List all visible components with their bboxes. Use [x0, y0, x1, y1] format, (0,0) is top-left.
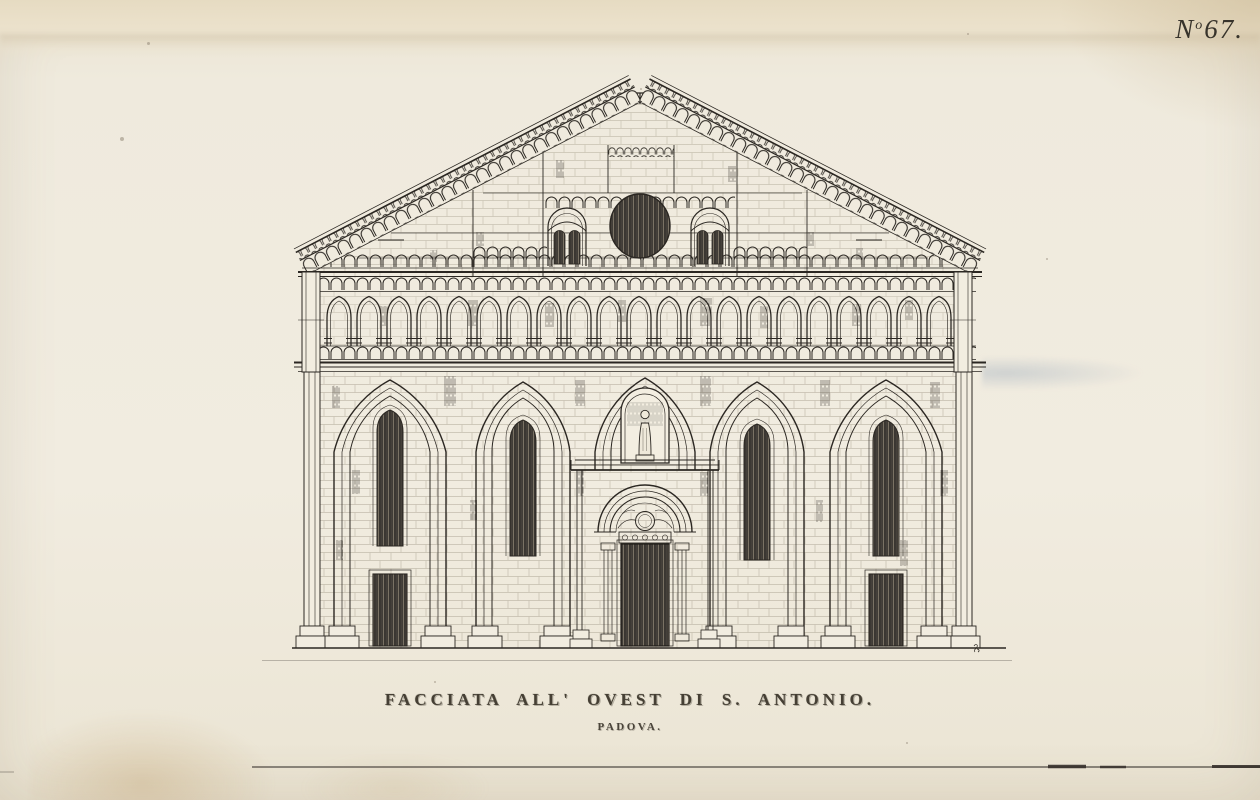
pointed-arch-gallery	[324, 292, 956, 346]
gallery-end-pilaster-left	[302, 272, 320, 372]
plate-number-prefix: N	[1175, 14, 1195, 44]
caption-subtitle: PADOVA.	[597, 721, 662, 733]
facade-engraving	[0, 0, 1260, 800]
plate-number-digits: 67.	[1204, 14, 1244, 44]
pediment	[294, 75, 986, 280]
gallery-end-pilaster-right	[954, 272, 972, 372]
lancet-window-bay4	[740, 419, 774, 560]
engraving-plate-page: No67. FACCIATA ALL' OVEST DI S. ANTONIO.…	[0, 0, 1260, 800]
arcade-gallery-band	[294, 268, 986, 372]
plate-number-superscript: o	[1195, 18, 1204, 33]
portal-door	[617, 540, 673, 646]
statue-niche	[621, 388, 669, 463]
rose-window	[610, 194, 670, 258]
lancet-window-bay2	[506, 415, 540, 556]
side-door-right	[865, 570, 907, 646]
side-door-left	[369, 570, 411, 646]
plate-number: No67.	[1175, 14, 1244, 45]
caption-title: FACCIATA ALL' OVEST DI S. ANTONIO.	[385, 690, 875, 710]
ground-line	[262, 648, 1012, 661]
lancet-window-bay1	[373, 405, 407, 546]
page-edge-line	[0, 767, 1260, 773]
lancet-window-bay5	[869, 415, 903, 556]
